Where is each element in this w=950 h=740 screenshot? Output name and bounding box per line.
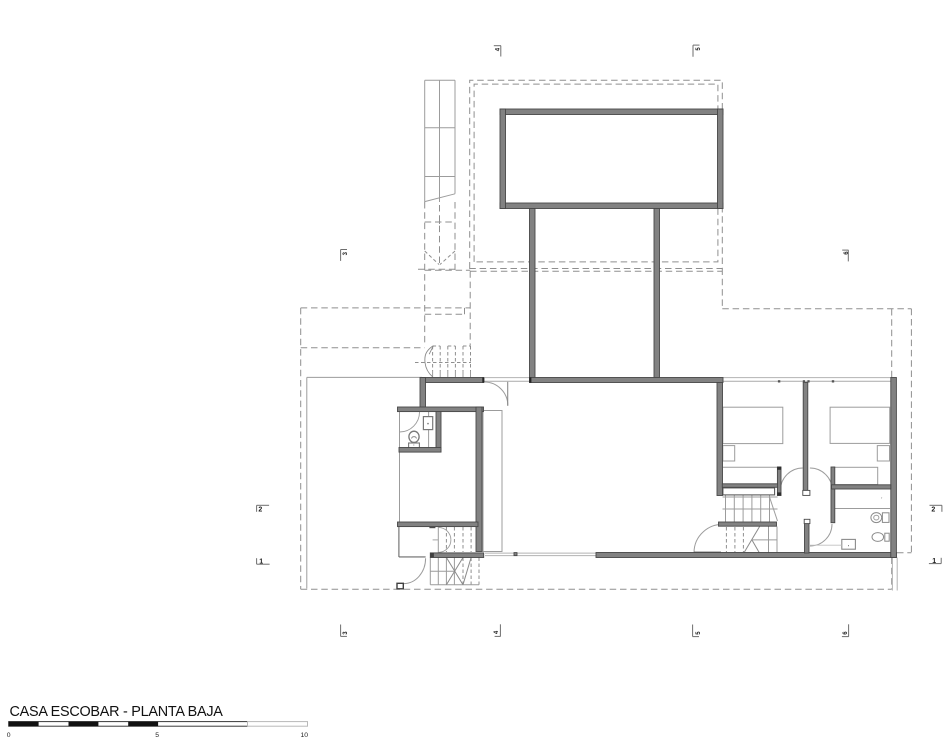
svg-text:2: 2 [258,506,262,513]
svg-text:CASA ESCOBAR - PLANTA BAJA: CASA ESCOBAR - PLANTA BAJA [10,704,224,720]
svg-text:1: 1 [259,558,263,565]
svg-text:2: 2 [931,506,935,513]
svg-text:1: 1 [932,558,936,565]
svg-text:0: 0 [7,732,11,739]
svg-text:5: 5 [155,732,159,739]
svg-text:10: 10 [301,732,309,739]
